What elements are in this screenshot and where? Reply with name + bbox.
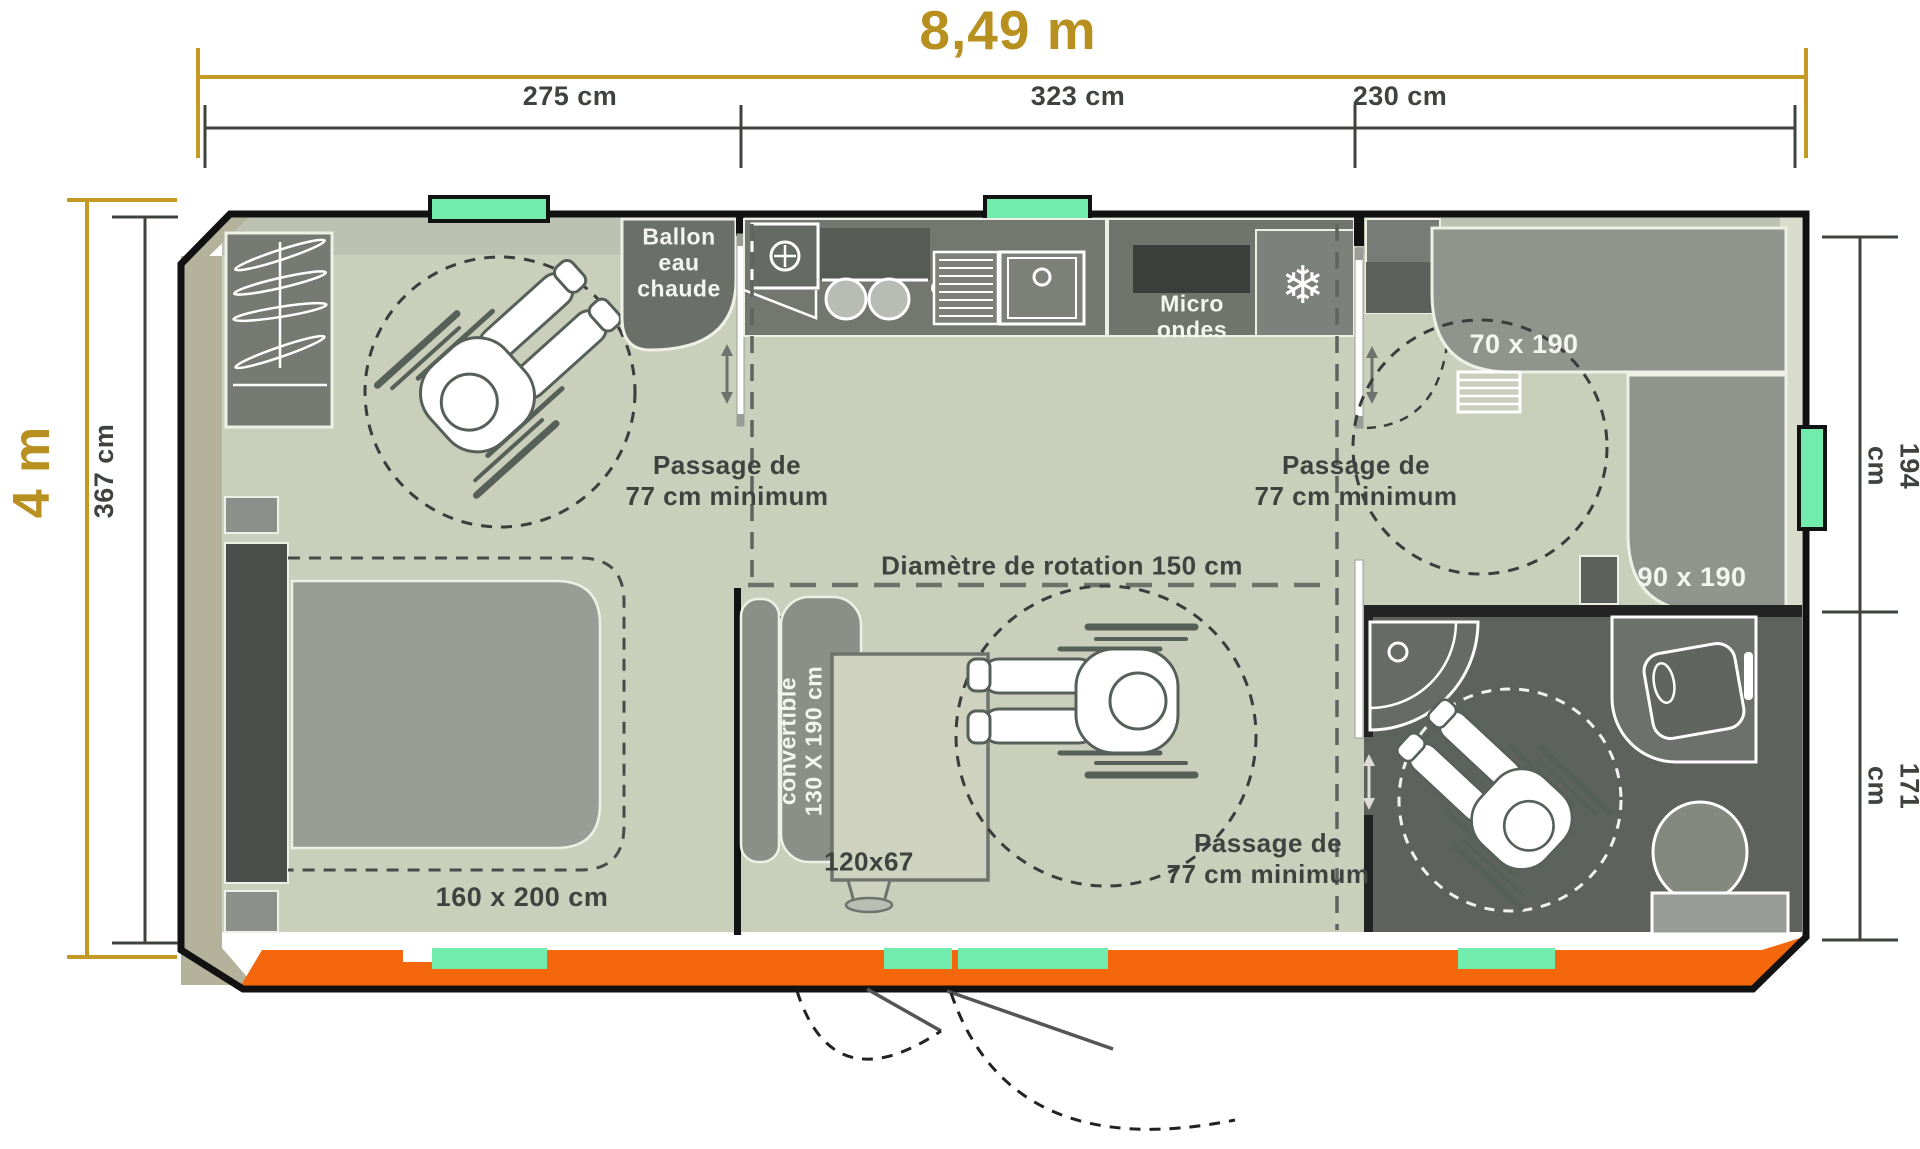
bedroom2-window [1799, 427, 1825, 529]
total-width-dimension: 8,49 m [919, 0, 1096, 63]
towel-rail [1744, 652, 1753, 700]
bunk-bed-side-label: 90 x 190 [1637, 561, 1746, 593]
sliding-door [737, 234, 744, 426]
hob-burner [869, 279, 909, 319]
table-label: 120x67 [824, 846, 914, 877]
right-bottom-dimension: 171 cm [1861, 763, 1920, 810]
section-dimension-right: 230 cm [1353, 80, 1448, 112]
floorplan-diagram: 8,49 m 275 cm 323 cm 230 cm 4 m 367 cm 1… [0, 0, 1920, 1149]
bedroom1-window [430, 197, 548, 221]
section-dimension-left: 275 cm [523, 80, 618, 112]
right-top-dimension: 194 cm [1861, 443, 1920, 490]
kitchen [744, 219, 1354, 336]
nightstand [225, 497, 278, 533]
sink [1000, 252, 1084, 324]
master-bed [292, 581, 600, 848]
rotation-diameter-label: Diamètre de rotation 150 cm [881, 550, 1243, 581]
front-door-glass-left [884, 948, 952, 969]
section-dimension-middle: 323 cm [1031, 80, 1126, 112]
passage-label-2: Passage de 77 cm minimum [1254, 450, 1457, 512]
drainer [934, 252, 998, 324]
passage-label-1: Passage de 77 cm minimum [625, 450, 828, 512]
nightstand [225, 891, 278, 932]
toilet-tank [1652, 893, 1788, 934]
sofa-label: convertible 130 X 190 cm [775, 666, 827, 817]
microwave-unit [1133, 245, 1250, 293]
front-door-glass-right [958, 948, 1108, 969]
total-height-dimension: 4 m [1, 426, 63, 519]
hob-burner [826, 279, 866, 319]
master-bed-label: 160 x 200 cm [436, 881, 609, 913]
interior-height-dimension: 367 cm [88, 424, 120, 519]
sliding-door [1355, 560, 1363, 738]
bunk-bed-top-label: 70 x 190 [1469, 328, 1578, 360]
toilet-bowl [1653, 802, 1747, 902]
front-window [432, 948, 547, 969]
kitchen-window [985, 197, 1090, 221]
entrance-door-swings [797, 989, 1235, 1129]
microwave-label: Micro ondes [1157, 291, 1227, 343]
water-heater-label: Ballon eau chaude [637, 224, 721, 301]
bed-headboard [225, 543, 288, 883]
bathroom-front-window [1458, 948, 1555, 969]
passage-label-3: Passage de 77 cm minimum [1166, 828, 1369, 890]
left-wall [181, 256, 222, 952]
freezer-icon: ❄ [1281, 255, 1325, 317]
bathroom [1355, 560, 1802, 934]
